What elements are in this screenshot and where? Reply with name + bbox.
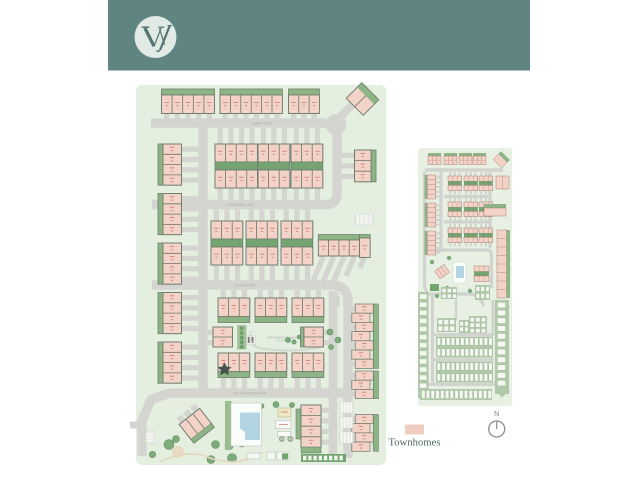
svg-text:N: N xyxy=(494,411,499,418)
svg-text:CHAMPLAIN LANE: CHAMPLAIN LANE xyxy=(226,203,254,207)
svg-text:VILLAGE CENTER DR: VILLAGE CENTER DR xyxy=(234,392,267,396)
svg-text:Townhomes: Townhomes xyxy=(389,438,441,449)
svg-text:HENRY LOOP: HENRY LOOP xyxy=(252,122,273,126)
svg-text:S HENRY: S HENRY xyxy=(336,293,340,308)
svg-text:DECKER WAY: DECKER WAY xyxy=(234,284,256,288)
